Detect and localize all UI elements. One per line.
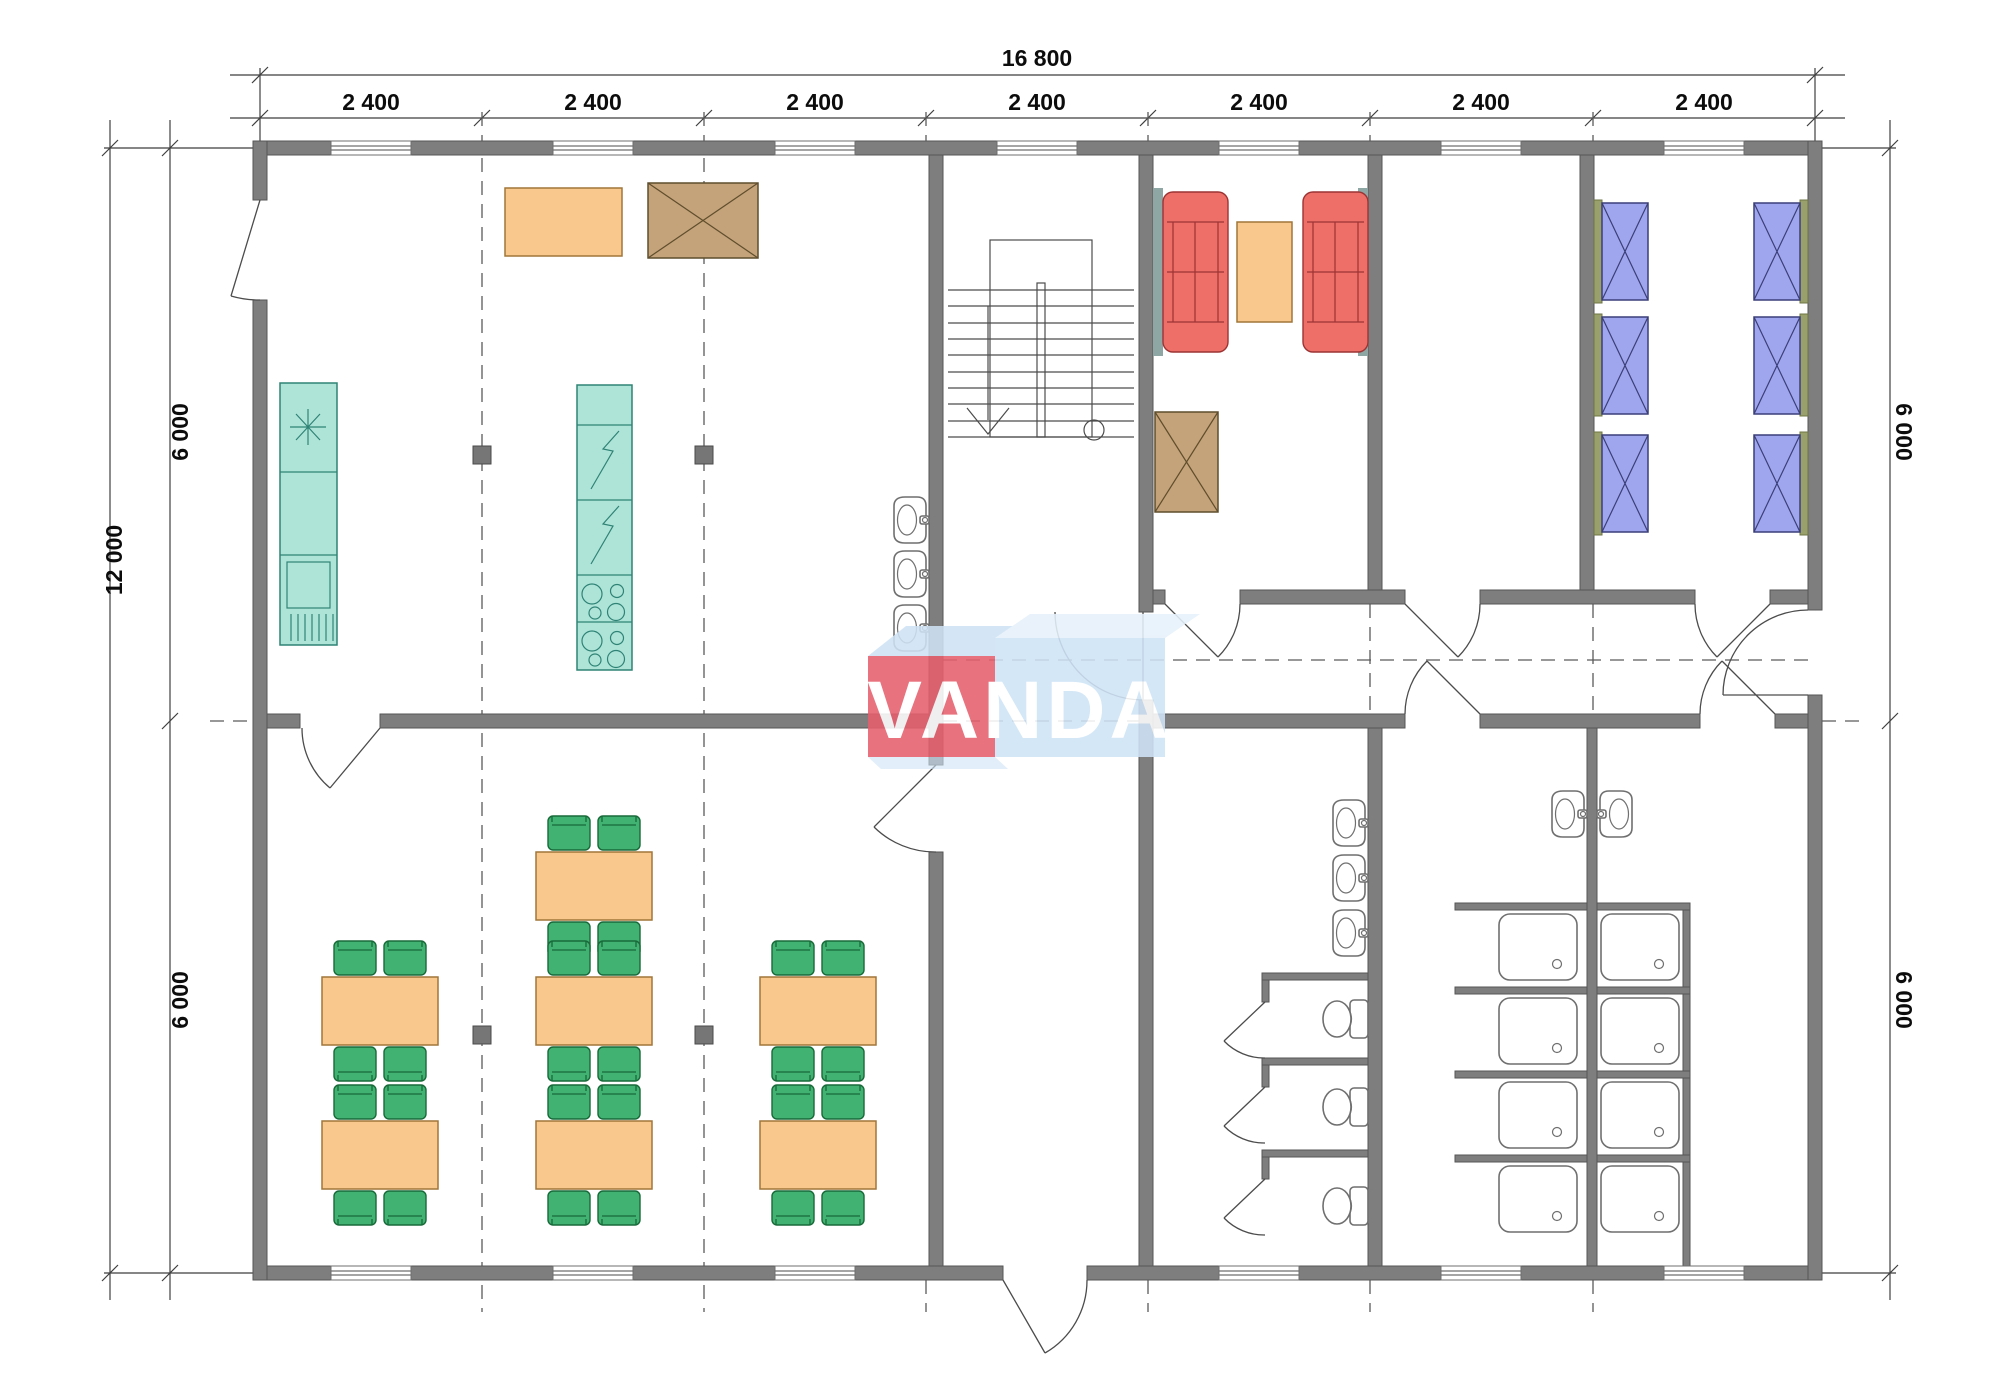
dining-table-with-chairs xyxy=(322,941,438,1081)
window xyxy=(1664,141,1744,155)
shower-tray-icon xyxy=(1499,998,1577,1064)
wash-basin-icon xyxy=(894,551,929,597)
toilet-icon xyxy=(1323,1088,1368,1126)
window xyxy=(775,141,855,155)
wash-basin-icon xyxy=(1333,910,1368,956)
shower-tray-icon xyxy=(1499,1082,1577,1148)
window xyxy=(1441,141,1521,155)
dim-bay-1: 2 400 xyxy=(342,89,400,115)
window xyxy=(331,141,411,155)
shower-room-door xyxy=(1700,661,1775,714)
staircase xyxy=(948,240,1134,440)
stall-door-1 xyxy=(1224,1002,1265,1058)
floor-plan-page: 16 800 2 400 2 400 2 400 2 400 2 400 2 4… xyxy=(0,0,2000,1380)
vanda-logo-text: VANDA xyxy=(867,665,1172,756)
wash-basin-icon xyxy=(1552,791,1587,837)
dining-table-with-chairs xyxy=(536,816,652,956)
dim-left-lower: 6 000 xyxy=(167,971,193,1029)
wash-basin-icon xyxy=(894,497,929,543)
bedroom-beds xyxy=(1594,200,1808,535)
bed-icon xyxy=(1754,317,1800,414)
window xyxy=(775,1266,855,1280)
shower-tray-icon xyxy=(1601,998,1679,1064)
sofa xyxy=(1163,192,1228,352)
lounge-cabinet xyxy=(1155,412,1218,512)
dining-tables xyxy=(322,816,876,1225)
bed-icon xyxy=(1754,435,1800,532)
bed-icon xyxy=(1754,203,1800,300)
dining-table-with-chairs xyxy=(536,941,652,1081)
dim-bay-4: 2 400 xyxy=(1008,89,1066,115)
dim-bay-7: 2 400 xyxy=(1675,89,1733,115)
kitchen-cabinet xyxy=(648,183,758,258)
dining-table-with-chairs xyxy=(760,941,876,1081)
dim-total-width: 16 800 xyxy=(1002,45,1072,71)
dim-total-height: 12 000 xyxy=(101,525,127,595)
stall-door-2 xyxy=(1224,1087,1265,1143)
shower-tray-icon xyxy=(1601,1166,1679,1232)
wash-basin-icon xyxy=(1597,791,1632,837)
bed-icon xyxy=(1602,317,1648,414)
bedroom-door xyxy=(1695,604,1770,657)
main-entrance-door xyxy=(1003,1280,1087,1353)
dim-right-upper: 6 000 xyxy=(1891,403,1917,461)
dim-bay-3: 2 400 xyxy=(786,89,844,115)
window xyxy=(1219,141,1299,155)
dim-bay-6: 2 400 xyxy=(1452,89,1510,115)
vanda-watermark: VANDA xyxy=(867,614,1200,769)
column-marker xyxy=(695,1026,713,1044)
wash-basin-icon xyxy=(1333,800,1368,846)
dim-left-upper: 6 000 xyxy=(167,403,193,461)
shower-tray-icon xyxy=(1601,914,1679,980)
kitchen-sink-counter xyxy=(280,383,337,645)
window xyxy=(1219,1266,1299,1280)
window xyxy=(331,1266,411,1280)
window xyxy=(553,1266,633,1280)
kitchen-dining-door xyxy=(302,728,380,788)
coffee-table xyxy=(1237,222,1292,322)
shower-tray-icon xyxy=(1499,1166,1577,1232)
bed-icon xyxy=(1602,435,1648,532)
lounge-furniture xyxy=(1153,188,1368,512)
wc-door xyxy=(1405,661,1480,714)
toilet-icon xyxy=(1323,1187,1368,1225)
shower-tray-icon xyxy=(1499,914,1577,980)
column-marker xyxy=(473,1026,491,1044)
window xyxy=(1441,1266,1521,1280)
stall-door-3 xyxy=(1224,1179,1265,1235)
kitchen-worktable xyxy=(505,188,622,256)
shower-tray-icon xyxy=(1601,1082,1679,1148)
dining-table-with-chairs xyxy=(322,1085,438,1225)
toilet-icon xyxy=(1323,1000,1368,1038)
dining-hall-door xyxy=(874,765,936,852)
dim-right-lower: 6 000 xyxy=(1891,971,1917,1029)
dining-table-with-chairs xyxy=(760,1085,876,1225)
window xyxy=(997,141,1077,155)
dim-bay-5: 2 400 xyxy=(1230,89,1288,115)
dim-bay-2: 2 400 xyxy=(564,89,622,115)
lounge-door xyxy=(1165,604,1240,657)
bed-icon xyxy=(1602,203,1648,300)
floor-plan-canvas: 16 800 2 400 2 400 2 400 2 400 2 400 2 4… xyxy=(0,0,2000,1380)
kitchen-fixtures xyxy=(280,183,929,670)
window xyxy=(1664,1266,1744,1280)
kitchen-island xyxy=(577,385,632,670)
column-marker xyxy=(473,446,491,464)
window xyxy=(553,141,633,155)
wash-basin-icon xyxy=(1333,855,1368,901)
sofa xyxy=(1303,192,1368,352)
corridor-side-door xyxy=(1723,610,1808,695)
column-marker xyxy=(695,446,713,464)
kitchen-exterior-door xyxy=(231,200,260,300)
middle-room-door xyxy=(1405,604,1480,657)
dining-table-with-chairs xyxy=(536,1085,652,1225)
